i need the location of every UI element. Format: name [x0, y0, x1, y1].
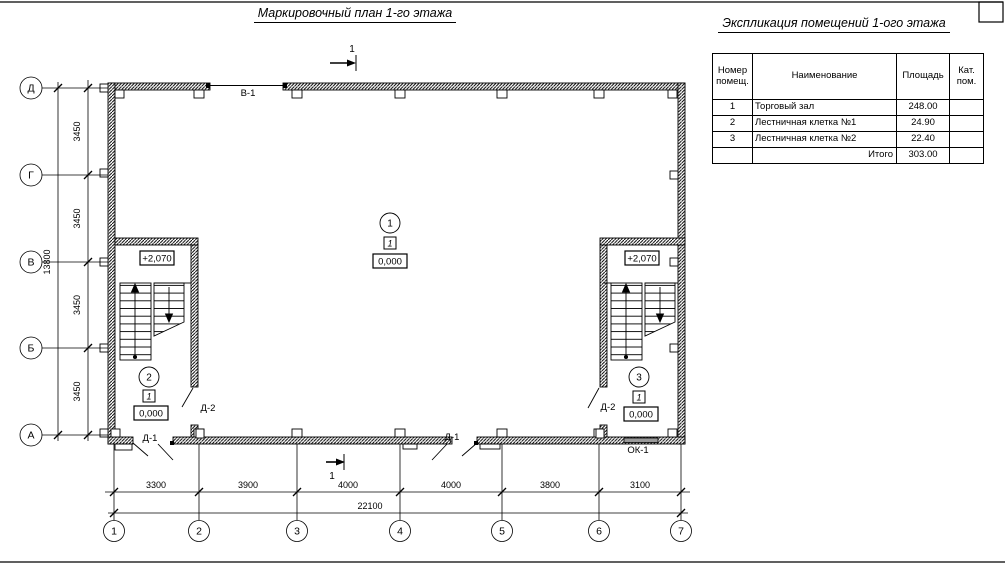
door-label-d2: Д-2 [201, 403, 216, 414]
frame-corner-box [979, 2, 1003, 22]
stairs-right [604, 283, 678, 360]
axis-labels-bottom: 1 2 3 4 5 6 7 [111, 526, 684, 538]
dim-value: 3450 [72, 381, 82, 401]
axis-label: Г [28, 170, 34, 182]
level-value: 0,000 [139, 409, 163, 420]
dim-total: 13800 [42, 249, 52, 274]
door-leaf-d1-right [462, 443, 477, 456]
dim-texts-bottom: 3300 3900 4000 4000 3800 3100 22100 [146, 480, 650, 511]
entrance-step [403, 444, 417, 449]
axis-label: Б [28, 343, 35, 355]
section-arrow [347, 60, 356, 67]
door-frame-mark-right [596, 429, 604, 438]
door-label-d1: Д-1 [445, 432, 460, 443]
dim-value: 3450 [72, 295, 82, 315]
dim-value: 3900 [238, 480, 258, 490]
axis-label: 5 [499, 526, 505, 538]
jamb-mark [170, 441, 174, 445]
dim-value: 3450 [72, 121, 82, 141]
section-mark-top [330, 55, 356, 71]
dim-value: 3100 [630, 480, 650, 490]
wall-left [108, 83, 115, 444]
door-leaves [133, 388, 599, 460]
axis-label: Д [27, 83, 34, 95]
entrance-step [115, 444, 132, 450]
axis-label: 3 [294, 526, 300, 538]
level-value: 0,000 [629, 410, 653, 421]
wall-top-left [108, 83, 210, 90]
door-leaf-d1-left [133, 443, 148, 456]
door-label-d1: Д-1 [143, 433, 158, 444]
floor-tag: 1 [146, 392, 151, 402]
section-mark-bottom [326, 454, 345, 470]
room-number: 1 [387, 219, 393, 230]
level-value: +2,070 [627, 254, 656, 265]
axis-label: 6 [596, 526, 602, 538]
dim-value: 4000 [338, 480, 358, 490]
axis-label: 2 [196, 526, 202, 538]
dim-value: 3450 [72, 208, 82, 228]
floor-tag: 1 [387, 239, 392, 249]
door-label-d2: Д-2 [601, 402, 616, 413]
axis-label: 1 [111, 526, 117, 538]
door-leaf-d2-left [182, 388, 193, 407]
door-leaf-d2-right [588, 388, 599, 408]
floor-plan-drawing: Д Г В Б А 1 2 3 4 5 6 7 [0, 0, 1005, 565]
dim-total: 22100 [357, 501, 382, 511]
stairwell-left-side-wall [191, 245, 198, 387]
axis-labels-left: Д Г В Б А [27, 83, 34, 442]
drawing-sheet: Маркировочный план 1-го этажа Экспликаци… [0, 0, 1005, 565]
jamb-mark [206, 83, 210, 88]
floor-tag: 1 [636, 393, 641, 403]
axis-label: 4 [397, 526, 403, 538]
wall-top-right [283, 83, 685, 90]
wall-bottom-2 [173, 437, 452, 444]
axis-label: А [27, 430, 34, 442]
stairs-left [120, 283, 191, 360]
wall-bottom-1 [108, 437, 133, 444]
dim-value: 4000 [441, 480, 461, 490]
room-number: 3 [636, 373, 642, 384]
gate-label: В-1 [241, 88, 256, 99]
label-leader [158, 444, 173, 460]
axis-label: 7 [678, 526, 684, 538]
stairwell-left-top-wall [115, 238, 198, 245]
dim-value: 3800 [540, 480, 560, 490]
stair-flight-up [120, 283, 151, 360]
feature-labels: В-1 ОК-1 Д-1 Д-1 Д-2 Д-2 [143, 88, 649, 456]
level-value: +2,070 [142, 254, 171, 265]
dims-bottom [105, 488, 690, 517]
wall-right [678, 83, 685, 444]
section-label: 1 [329, 471, 335, 482]
stair-flight-up [611, 283, 642, 360]
axis-label: В [27, 257, 34, 269]
label-leader [432, 444, 447, 460]
room-number: 2 [146, 373, 152, 384]
stairwell-right-top-wall [600, 238, 685, 245]
level-value: 0,000 [378, 257, 402, 268]
door-frame-mark-left [196, 429, 204, 438]
room-tag-1: 1 1 0,000 [373, 213, 407, 268]
stairwell-right-side-wall [600, 245, 607, 387]
dim-texts-left: 3450 3450 3450 3450 13800 [42, 121, 82, 401]
dim-value: 3300 [146, 480, 166, 490]
jamb-mark [283, 83, 287, 88]
window-ok1 [624, 438, 658, 443]
entrance-step [480, 444, 500, 449]
window-label: ОК-1 [627, 445, 648, 456]
section-label: 1 [349, 44, 355, 55]
